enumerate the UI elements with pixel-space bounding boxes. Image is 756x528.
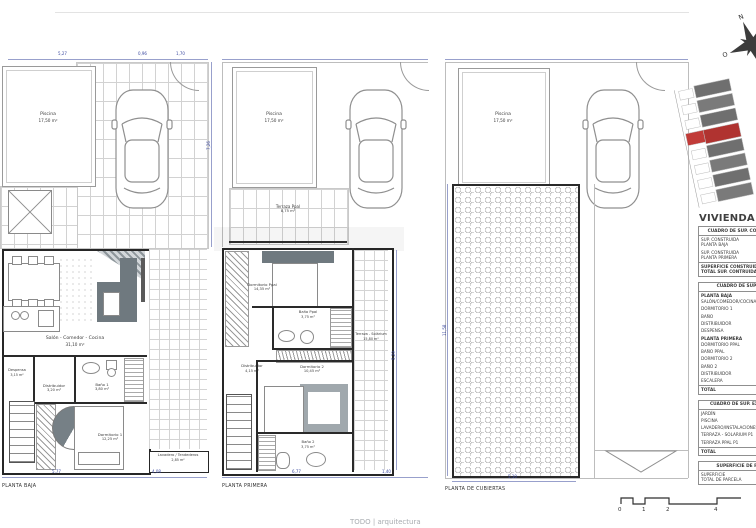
dimension-label: 7,26 [207, 141, 211, 150]
compass-rose: N S E O [712, 8, 756, 78]
garden-tiles [149, 249, 207, 449]
bed-headboard-ppal [262, 251, 334, 263]
dimension-label: 5,29 [392, 351, 396, 360]
table-row: TERRAZA - SOLARIUM P115,80 m² [699, 431, 756, 438]
table-construida: CUADRO DE SUP. CONSTRUIDAS SUP. CONSTRUI… [698, 226, 756, 277]
table-row: DORMITORIO PPAL14,35 m² [699, 341, 756, 348]
canopy-triangle [604, 450, 678, 474]
scale-bar [608, 490, 756, 518]
room-label-distribuidor-baja: Distribuidor 3,20 m² [36, 383, 72, 393]
table-row: BAÑO PPAL3,75 m² [699, 348, 756, 355]
room-label-bano2: Baño 2 3,75 m² [288, 440, 328, 450]
room-label-bano-ppal: Baño Ppal 3,75 m² [288, 310, 328, 320]
room-label-terraza-solarium: Terraza - Solárium 15,80 m² [352, 332, 390, 341]
row-label: DISTRIBUIDOR [701, 321, 731, 326]
car-top-view [583, 84, 643, 214]
rug [58, 257, 96, 321]
wall [352, 248, 354, 472]
bathroom-sink [306, 452, 326, 467]
plot-line [222, 62, 428, 63]
room-area: 2,85 m² [150, 458, 206, 463]
chair [44, 256, 54, 265]
table-row: DORMITORIO 210,45 m² [699, 355, 756, 362]
table-row: DESPENSA3,15 m² [699, 327, 756, 334]
row-label: JARDÍN [701, 411, 716, 416]
scale-tick: 4 [714, 507, 718, 513]
car-top-view [346, 84, 406, 214]
plan-caption-primera: PLANTA PRIMERA [222, 484, 267, 489]
wall [33, 355, 35, 403]
table-utiles: CUADRO DE SUP. UTILES PLANTA BAJA SALÓN/… [698, 282, 756, 395]
table-row: SUP. CONSTRUIDA PLANTA BAJA 66,90 m² [699, 236, 756, 249]
pool-primera [232, 67, 317, 188]
pool-edge [462, 72, 546, 183]
row-label: TOTAL [701, 449, 716, 454]
room-label-dormitorio1: Dormitorio 1 12,25 m² [88, 432, 132, 442]
dining-table [8, 263, 60, 301]
dimension-line [2, 477, 207, 478]
table-header: CUADRO DE SUP. UTILES [699, 283, 756, 292]
stove-burner [20, 311, 29, 320]
table-header: CUADRO DE SUP. CONSTRUIDAS [699, 227, 756, 236]
row-label: BAÑO [701, 314, 713, 319]
table-header: CUADRO DE SUP. EXTERIORES [699, 401, 756, 410]
wall [256, 360, 352, 362]
room-label-dormitorio2: Dormitorio 2 10,45 m² [284, 364, 340, 374]
table-row: ESCALERA4,25 m² [699, 377, 756, 384]
chair [12, 256, 22, 265]
dimension-line [8, 59, 208, 60]
dimension-line [452, 481, 576, 482]
table-row: DORMITORIO 112,25 m² [699, 305, 756, 312]
row-label: SUP. CONSTRUIDA PLANTA BAJA [701, 237, 739, 248]
table-row: SALÓN/COMEDOR/COCINA31,10 m² [699, 298, 756, 305]
pool-cubiertas [458, 68, 550, 187]
table-row: DISTRIBUIDOR3,20 m² [699, 320, 756, 327]
compass-n: N [737, 12, 745, 21]
table-exteriores: CUADRO DE SUP. EXTERIORES JARDÍN70,10 m²… [698, 400, 756, 457]
bed-pillow [78, 452, 120, 465]
room-area: 4,15 m² [232, 369, 272, 374]
row-label: DISTRIBUIDOR [701, 371, 731, 376]
plot-line [445, 478, 688, 479]
row-label: TOTAL [701, 387, 716, 392]
dimension-label: 5,27 [58, 52, 67, 56]
row-label: SUP. CONSTRUIDA PLANTA PRIMERA [701, 250, 739, 261]
chair [28, 256, 38, 265]
plot-line [222, 62, 223, 247]
area-tables-panel: CUADRO DE SUP. CONSTRUIDAS SUP. CONSTRUI… [698, 226, 756, 490]
table-total-row: TOTAL 94,20 m² [699, 385, 756, 393]
skylight-box [8, 190, 52, 234]
toilet-bowl [276, 452, 290, 469]
row-label: PISCINA [701, 418, 718, 423]
terrace-line [594, 184, 595, 478]
room-label-bano1: Baño 1 3,80 m² [85, 382, 119, 392]
wall [74, 356, 76, 402]
gravel-roof [452, 184, 580, 478]
room-area: 3,20 m² [36, 388, 72, 393]
room-area: 3,15 m² [2, 373, 32, 378]
room-label-piscina-primera: Piscina 17,50 m² [244, 112, 304, 124]
room-area: 17,50 m² [473, 118, 533, 124]
room-area: 12,25 m² [88, 437, 132, 442]
room-area: 31,10 m² [15, 342, 135, 348]
sofa-chaise [120, 258, 137, 282]
row-label: DORMITORIO 2 [701, 356, 733, 361]
row-label: DORMITORIO PPAL [701, 342, 740, 347]
sheet-title: VIVIENDA A1 [699, 213, 756, 224]
site-location-map [697, 86, 756, 210]
wall [272, 306, 274, 348]
row-label: DESPENSA [701, 328, 723, 333]
row-label: LAVADERO/INSTALACIONES [701, 425, 756, 430]
pool-edge [236, 71, 313, 184]
row-label: SUPERFICIE CONSTRUIDA TOTAL SUP. CONTRUI… [701, 264, 756, 275]
toilet-bowl [300, 330, 314, 344]
bathroom-sink [278, 330, 295, 342]
table-row: LAVADERO/INSTALACIONES2,85 m² [699, 424, 756, 431]
table-header: SUPERFICIE DE PARCELA [699, 462, 756, 471]
table-row: DISTRIBUIDOR4,15 m² [699, 370, 756, 377]
solarium-tiles [354, 250, 388, 470]
dimension-line [445, 59, 688, 60]
room-area: 14,35 m² [238, 287, 286, 292]
room-label-dormitorio-ppal: Dormitorio Ppal 14,35 m² [238, 282, 286, 292]
table-row: PISCINA17,50 m² [699, 417, 756, 424]
room-area: 10,45 m² [284, 369, 340, 374]
room-label-salon: Salón - Comedor - Cocina 31,10 m² [15, 336, 135, 348]
staircase-primera [226, 394, 252, 470]
room-area: 8,75 m² [258, 209, 318, 214]
sheet-border-line [55, 12, 689, 13]
wall [256, 432, 352, 434]
table-total-row: SUPERFICIE CONSTRUIDA TOTAL SUP. CONTRUI… [699, 262, 756, 276]
row-label: TERRAZA PPAL P1 [701, 440, 738, 445]
dimension-label: 5,77 [52, 470, 61, 474]
room-area: 3,80 m² [85, 387, 119, 392]
plan-caption-cubiertas: PLANTA DE CUBIERTAS [445, 487, 505, 492]
row-label: TERRAZA - SOLARIUM P1 [701, 432, 753, 437]
table-row: TERRAZA PPAL P18,75 m² [699, 439, 756, 446]
tv-unit [141, 258, 145, 302]
stair-void-hatch [225, 251, 249, 347]
room-area: 17,50 m² [244, 118, 304, 124]
shower-hatch [124, 358, 144, 402]
toilet-bowl [107, 368, 116, 377]
dimension-line [396, 250, 397, 470]
row-label: SUPERFICIE TOTAL DE PARCELA [701, 472, 742, 483]
row-label: BAÑO PPAL [701, 349, 724, 354]
dimension-label: 4,08 [152, 470, 161, 474]
kitchen-sink [38, 310, 54, 327]
table-row: BAÑO3,80 m² [699, 313, 756, 320]
plot-line [445, 62, 446, 478]
pool-edge [6, 70, 92, 183]
room-label-distribuidor-primera: Distribuidor 4,15 m² [232, 364, 272, 374]
scale-tick: 1 [642, 507, 646, 513]
table-total-row: TOTAL 115,00 m² [699, 447, 756, 455]
bed-surround-inner [308, 392, 340, 424]
shower-hatch [330, 308, 352, 348]
pool-baja [2, 66, 96, 187]
room-area: 3,75 m² [288, 315, 328, 320]
row-label: SALÓN/COMEDOR/COCINA [701, 299, 756, 304]
table-row: JARDÍN70,10 m² [699, 410, 756, 417]
plan-caption-baja: PLANTA BAJA [2, 484, 36, 489]
compass-o: O [721, 50, 729, 59]
room-label-lavadero: Lavadero / Tendederos 2,85 m² [150, 453, 206, 462]
dimension-label: 1,40 [382, 470, 391, 474]
architect-logo: TODO | arquitectura [350, 518, 421, 526]
dimension-label: 1,70 [176, 52, 185, 56]
dimension-label: 11,58 [443, 325, 447, 336]
table-row: SUPERFICIE TOTAL DE PARCELA 160,11 m² [699, 471, 756, 484]
room-area: 17,50 m² [18, 118, 78, 124]
drawing-sheet: 5,27 0,96 1,70 Piscina 17,50 m² 7,26 Lav… [0, 0, 756, 528]
scale-tick: 2 [666, 507, 670, 513]
scale-tick: 0 [618, 507, 622, 513]
room-label-piscina-cubiertas: Piscina 17,50 m² [473, 112, 533, 124]
dimension-label: 6,77 [292, 470, 301, 474]
dimension-line [222, 59, 428, 60]
room-area: 3,75 m² [288, 445, 328, 450]
room-label-despensa: Despensa 3,15 m² [2, 368, 32, 377]
stove-burner [11, 311, 20, 320]
room-label-piscina-baja: Piscina 17,50 m² [18, 112, 78, 124]
staircase-baja [9, 401, 35, 463]
row-label: ESCALERA [701, 378, 723, 383]
dimension-line [211, 62, 212, 247]
car-top-view [112, 84, 172, 214]
row-label: DORMITORIO 1 [701, 306, 733, 311]
dimension-label: 5,10 [508, 475, 517, 479]
shower-hatch [258, 435, 276, 471]
bathroom-sink [82, 362, 100, 374]
row-label: BAÑO 2 [701, 364, 717, 369]
table-row: BAÑO 23,75 m² [699, 363, 756, 370]
dimension-line [222, 477, 428, 478]
coffee-table [103, 292, 120, 316]
dimension-line [447, 184, 448, 476]
room-label-terraza-ppal: Terraza Ppal 8,75 m² [258, 204, 318, 214]
table-parcela: SUPERFICIE DE PARCELA SUPERFICIE TOTAL D… [698, 461, 756, 485]
room-area: 15,80 m² [352, 337, 390, 342]
table-row: SUP. CONSTRUIDA PLANTA PRIMERA 45,90 m² [699, 249, 756, 262]
bed-dormitorio2 [264, 386, 304, 434]
dimension-label: 0,96 [138, 52, 147, 56]
